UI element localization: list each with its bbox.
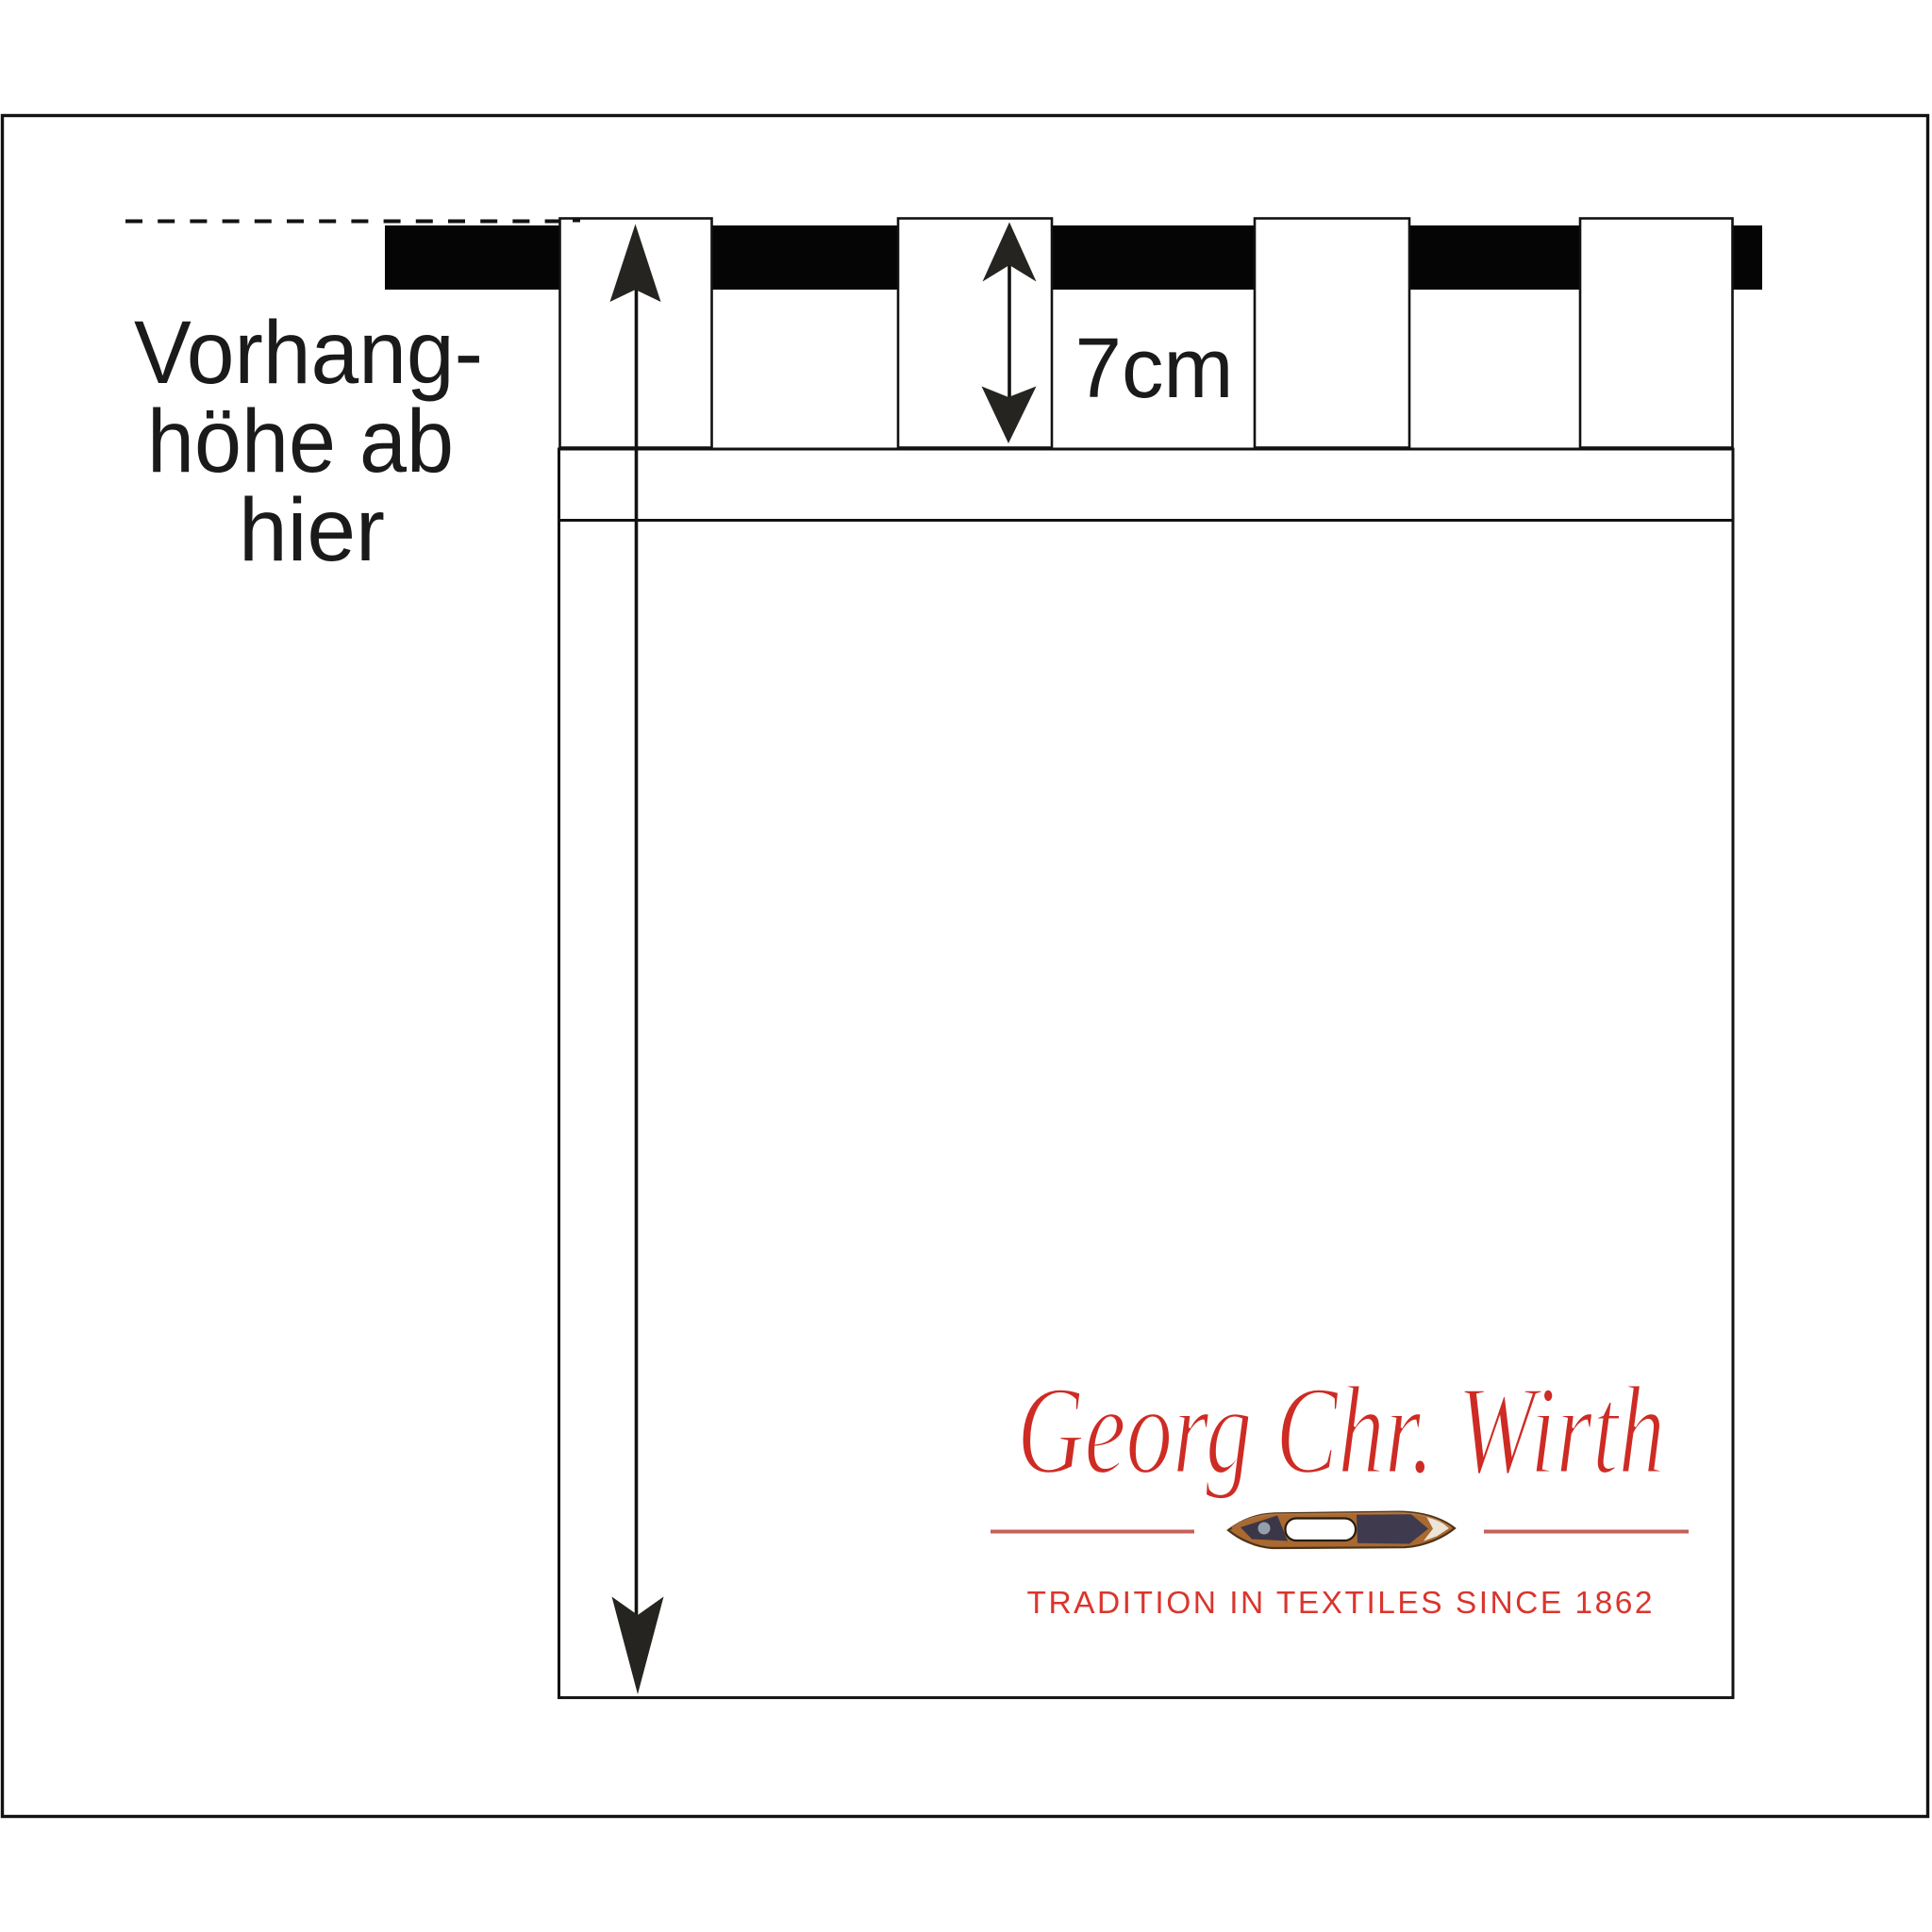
svg-text:Georg Chr. Wirth: Georg Chr. Wirth (1017, 1360, 1665, 1500)
svg-text:höhe ab: höhe ab (147, 391, 454, 491)
svg-text:7cm: 7cm (1075, 322, 1234, 416)
svg-text:Vorhang-: Vorhang- (134, 303, 483, 403)
svg-text:hier: hier (239, 480, 385, 580)
